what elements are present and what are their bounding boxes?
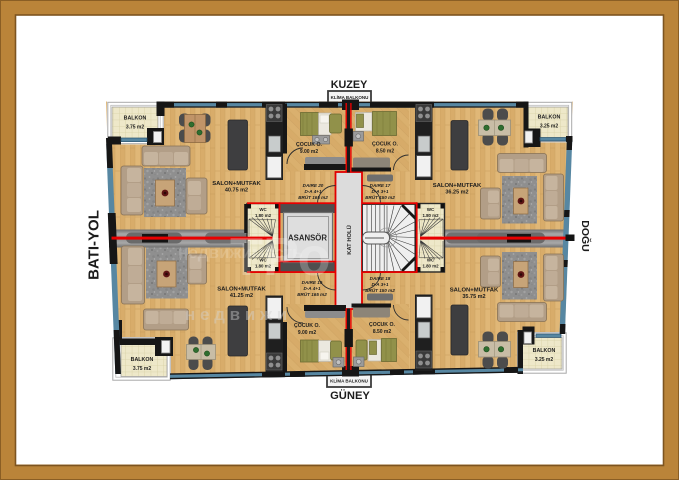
svg-text:1.80 m2: 1.80 m2: [422, 213, 439, 218]
svg-text:36.25 m2: 36.25 m2: [445, 190, 468, 196]
svg-text:KLİMA BALKONU: KLİMA BALKONU: [330, 378, 368, 384]
svg-text:SALON+MUTFAK: SALON+MUTFAK: [433, 183, 482, 189]
svg-text:40.75 m2: 40.75 m2: [225, 188, 248, 194]
svg-text:SALON+MUTFAK: SALON+MUTFAK: [217, 287, 266, 293]
svg-text:BALKON: BALKON: [533, 348, 556, 354]
svg-text:BRÜT 150 m2: BRÜT 150 m2: [365, 194, 395, 200]
svg-text:ÇOCUK O.: ÇOCUK O.: [369, 322, 395, 328]
svg-text:недвижимость: недвижимость: [178, 243, 303, 262]
svg-text:DAIRE 20: DAIRE 20: [303, 183, 324, 188]
svg-text:D-A 4+1: D-A 4+1: [304, 189, 322, 194]
svg-text:н е д в и ж и: н е д в и ж и: [185, 305, 287, 324]
svg-text:D-A 3+1: D-A 3+1: [371, 282, 389, 287]
svg-text:DAIRE 17: DAIRE 17: [370, 183, 391, 188]
svg-text:BALKON: BALKON: [131, 357, 154, 363]
svg-text:9.00 m2: 9.00 m2: [300, 149, 319, 155]
svg-text:8.50 m2: 8.50 m2: [376, 148, 395, 154]
svg-text:8.50 m2: 8.50 m2: [373, 329, 392, 335]
svg-text:KUZEY: KUZEY: [331, 79, 368, 91]
svg-text:3.75 m2: 3.75 m2: [133, 366, 152, 372]
svg-text:BRÜT 165 m2: BRÜT 165 m2: [297, 291, 327, 297]
svg-text:9.00 m2: 9.00 m2: [298, 330, 317, 336]
svg-text:GÜNEY: GÜNEY: [330, 389, 370, 402]
svg-text:35.75 m2: 35.75 m2: [462, 294, 485, 300]
svg-text:WC: WC: [427, 207, 435, 212]
svg-text:ÇOCUK O.: ÇOCUK O.: [294, 323, 320, 329]
svg-text:WC: WC: [427, 258, 435, 263]
svg-text:41.25 m2: 41.25 m2: [230, 293, 253, 299]
svg-text:BATI-YOL: BATI-YOL: [86, 210, 103, 280]
svg-text:1.80 m2: 1.80 m2: [422, 264, 439, 269]
svg-text:BRÜT 165 m2: BRÜT 165 m2: [298, 194, 328, 200]
svg-text:ÇOCUK O.: ÇOCUK O.: [372, 142, 398, 148]
svg-text:SALON+MUTFAK: SALON+MUTFAK: [212, 181, 261, 187]
svg-text:3.75 m2: 3.75 m2: [126, 125, 145, 131]
svg-text:ÇOCUK O.: ÇOCUK O.: [296, 142, 322, 148]
svg-text:DAIRE 18: DAIRE 18: [370, 276, 391, 281]
svg-text:D-A 3+1: D-A 3+1: [371, 189, 389, 194]
svg-text:BALKON: BALKON: [124, 116, 147, 122]
svg-text:1.80 m2: 1.80 m2: [255, 213, 272, 218]
svg-text:DOĞU: DOĞU: [579, 220, 592, 252]
svg-text:BRÜT 150 m2: BRÜT 150 m2: [365, 287, 395, 293]
svg-text:KLİMA BALKONU: KLİMA BALKONU: [331, 94, 369, 100]
svg-text:WC: WC: [259, 207, 267, 212]
svg-text:3.25 m2: 3.25 m2: [540, 124, 559, 130]
svg-text:3.25 m2: 3.25 m2: [535, 357, 554, 363]
svg-text:KAT HOLÜ: KAT HOLÜ: [346, 225, 353, 255]
svg-text:SALON+MUTFAK: SALON+MUTFAK: [450, 288, 499, 294]
svg-text:BALKON: BALKON: [538, 115, 561, 121]
